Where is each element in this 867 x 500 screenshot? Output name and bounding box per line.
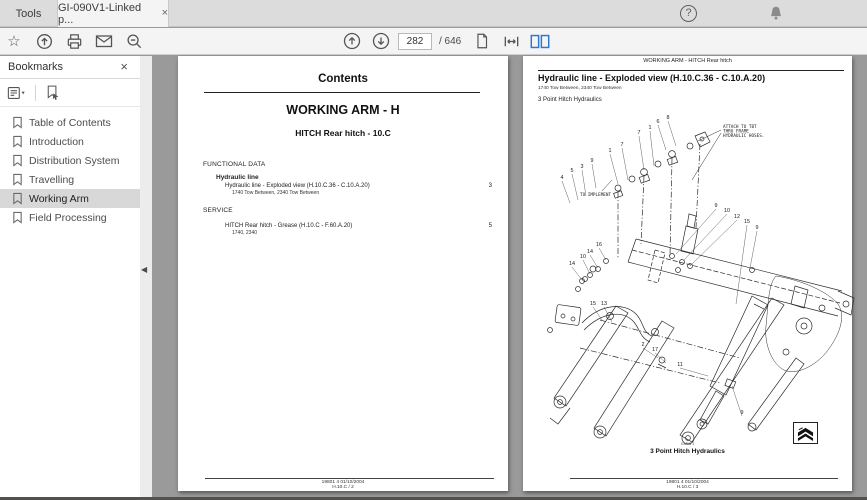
fit-width-icon[interactable] <box>499 29 523 53</box>
single-page-view-icon[interactable] <box>470 29 494 53</box>
tab-close-icon[interactable]: × <box>162 8 168 19</box>
diagram-callout: 2 <box>642 342 645 348</box>
diagram-callout: 1 <box>649 125 652 131</box>
help-icon[interactable]: ? <box>680 5 697 22</box>
pdf-viewer-window: Tools GI-090V1-Linked p... × ? ☆ <box>0 0 867 500</box>
diagram-callout: 17 <box>652 347 658 353</box>
notifications-bell-icon[interactable] <box>767 4 785 22</box>
exploded-view-diagram: 453917716891012159161410141513217119ATTA… <box>540 108 860 445</box>
contents-entry[interactable]: Hydraulic line - Exploded view (H.10.C.3… <box>225 183 492 189</box>
tab-tools[interactable]: Tools <box>0 0 57 27</box>
bookmark-item-label: Distribution System <box>29 155 119 167</box>
page-footer-section: H.10.C / 2 <box>178 485 508 490</box>
bookmark-item-table-of-contents[interactable]: Table of Contents <box>0 113 140 132</box>
entry-page-number: 5 <box>489 223 492 229</box>
bookmark-item-label: Working Arm <box>29 193 89 205</box>
diagram-callout: 4 <box>561 175 564 181</box>
figure-caption: 3 Point Hitch Hydraulics <box>523 448 852 455</box>
collapse-panel-icon[interactable]: ◀ <box>141 265 147 274</box>
diagram-callout: 8 <box>667 115 670 121</box>
tab-bar: Tools GI-090V1-Linked p... × ? <box>0 0 867 27</box>
diagram-callout: 9 <box>715 203 718 209</box>
diagram-callout: 14 <box>569 261 575 267</box>
entry-models: 1740 Tow Between, 2340 Tow Between <box>232 190 319 196</box>
diagram-callout: 12 <box>734 214 740 220</box>
bookmark-list: Table of Contents Introduction Distribut… <box>0 113 140 227</box>
diagram-callout: 9 <box>756 225 759 231</box>
diagram-callout: 15 <box>744 219 750 225</box>
group-heading-functional-data: FUNCTIONAL DATA <box>203 161 265 168</box>
bookmark-icon <box>12 192 23 205</box>
diagram-callout: 11 <box>677 362 683 368</box>
bookmark-icon <box>12 211 23 224</box>
bookmark-icon <box>12 135 23 148</box>
page-footer-code: 19801 4 01/10/2004 <box>178 480 508 485</box>
diagram-callout: 9 <box>741 410 744 416</box>
diagram-callout: 5 <box>571 168 574 174</box>
diagram-callout: 13 <box>601 301 607 307</box>
document-area[interactable]: Contents WORKING ARM - H HITCH Rear hitc… <box>152 55 867 497</box>
tab-document-label: GI-090V1-Linked p... <box>58 2 155 26</box>
diagram-callout: 16 <box>596 242 602 248</box>
bookmark-item-label: Field Processing <box>29 212 107 224</box>
bookmarks-close-icon[interactable]: × <box>120 59 128 74</box>
diagram-callout: 14 <box>587 249 593 255</box>
toolbar-divider <box>35 85 36 101</box>
diagram-callout: 1 <box>609 148 612 154</box>
running-header: WORKING ARM - HITCH Rear hitch <box>523 58 852 64</box>
print-icon[interactable] <box>62 29 86 53</box>
diagram-callout: 10 <box>580 254 586 260</box>
contents-entry[interactable]: HITCH Rear hitch - Grease (H.10.C - F.60… <box>225 223 492 229</box>
diagram-callout: 7 <box>638 130 641 136</box>
entry-label: Hydraulic line - Exploded view (H.10.C.3… <box>225 183 370 189</box>
two-page-view-icon[interactable] <box>528 29 552 53</box>
bookmarks-panel-title: Bookmarks <box>8 61 63 73</box>
email-icon[interactable] <box>92 29 116 53</box>
bookmark-item-introduction[interactable]: Introduction <box>0 132 140 151</box>
bookmark-item-working-arm[interactable]: Working Arm <box>0 189 140 208</box>
previous-page-icon[interactable] <box>340 29 364 53</box>
diagram-callout: 15 <box>590 301 596 307</box>
group-heading-service: SERVICE <box>203 207 233 214</box>
page-exploded-view: WORKING ARM - HITCH Rear hitch Hydraulic… <box>523 56 852 491</box>
contents-title: Contents <box>178 73 508 85</box>
figure-subtitle: 3 Point Hitch Hydraulics <box>538 97 602 103</box>
diagram-callout: 6 <box>657 119 660 125</box>
next-page-icon[interactable] <box>369 29 393 53</box>
favorites-star-icon[interactable]: ☆ <box>2 29 26 53</box>
page-footer-section: H.10.C / 3 <box>523 485 852 490</box>
figure-title: Hydraulic line - Exploded view (H.10.C.3… <box>538 73 765 83</box>
section-title: WORKING ARM - H <box>178 103 508 117</box>
group-subheading: Hydraulic line <box>216 174 259 181</box>
subsection-title: HITCH Rear hitch - 10.C <box>178 128 508 138</box>
bookmark-item-label: Travelling <box>29 174 74 186</box>
bookmark-item-label: Introduction <box>29 136 84 148</box>
new-bookmark-icon[interactable] <box>44 84 61 101</box>
bookmarks-panel: Bookmarks × Table of Contents <box>0 56 140 497</box>
bookmark-icon <box>12 154 23 167</box>
page-total-label: / 646 <box>439 36 461 47</box>
title-rule <box>204 92 480 93</box>
bookmarks-options-icon[interactable] <box>7 85 27 101</box>
diagram-callout: 9 <box>591 158 594 164</box>
tab-tools-label: Tools <box>16 8 42 20</box>
share-upload-icon[interactable] <box>32 29 56 53</box>
main-toolbar: ☆ <box>0 28 867 55</box>
section-marker-icon[interactable] <box>793 422 818 444</box>
diagram-annotation: ATTACH TO TBTTHRU FRAMEHYDRAULIC HOSES. <box>723 124 764 139</box>
entry-models: 1740, 2340 <box>232 230 257 236</box>
bookmark-item-field-processing[interactable]: Field Processing <box>0 208 140 227</box>
page-contents: Contents WORKING ARM - H HITCH Rear hitc… <box>178 56 508 491</box>
entry-label: HITCH Rear hitch - Grease (H.10.C - F.60… <box>225 223 352 229</box>
header-rule <box>538 70 844 71</box>
diagram-callout: 7 <box>621 142 624 148</box>
search-zoom-icon[interactable] <box>122 29 146 53</box>
panel-edge-strip <box>140 56 152 497</box>
page-number-input[interactable] <box>398 33 432 50</box>
bookmark-item-label: Table of Contents <box>29 117 111 129</box>
bookmark-item-travelling[interactable]: Travelling <box>0 170 140 189</box>
bookmark-icon <box>12 173 23 186</box>
tab-document[interactable]: GI-090V1-Linked p... × <box>57 0 169 27</box>
figure-models: 1740 Tow Between, 2340 Tow Between <box>538 86 622 91</box>
diagram-callout: 10 <box>724 208 730 214</box>
diagram-annotation: TO IMPLEMENT <box>580 192 611 198</box>
bookmark-icon <box>12 116 23 129</box>
diagram-callout: 3 <box>581 164 584 170</box>
page-footer-code: 19801 4 01/10/2004 <box>523 480 852 485</box>
bookmark-item-distribution-system[interactable]: Distribution System <box>0 151 140 170</box>
entry-page-number: 3 <box>489 183 492 189</box>
